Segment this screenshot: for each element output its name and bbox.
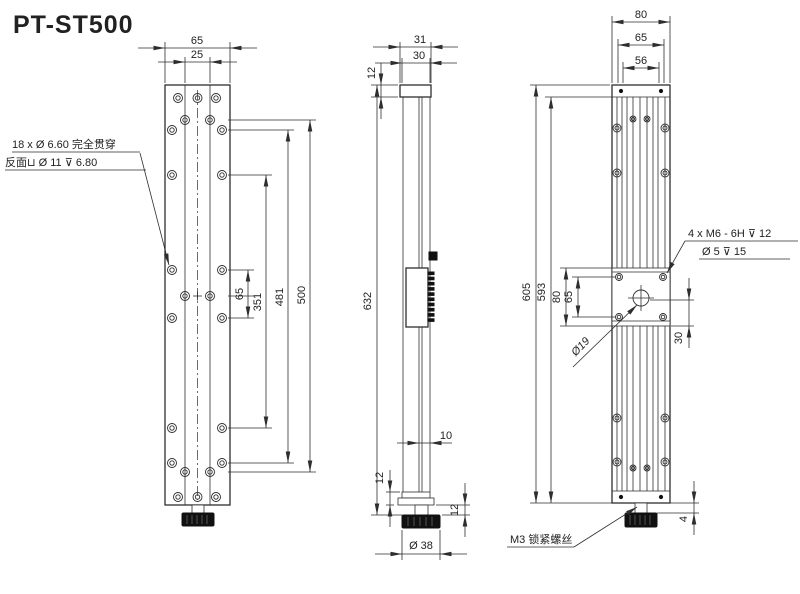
dim-label: 65	[234, 288, 246, 300]
dim-label: Ø 38	[409, 540, 433, 552]
dim-side-cap-height: 12	[366, 63, 398, 119]
dim-label: 65	[563, 291, 575, 303]
dim-label: 4	[678, 516, 690, 522]
hole-note-line1: 18 x Ø 6.60 完全贯穿	[12, 137, 116, 151]
front-center-cross	[193, 292, 202, 301]
dim-front-351: 351	[228, 175, 272, 428]
dim-label: 80	[635, 9, 647, 21]
hole-note-line2: 反面⊔ Ø 11 ⊽ 6.80	[5, 156, 97, 169]
side-knob-teeth	[428, 272, 434, 321]
dim-side-foot-left: 12	[374, 470, 400, 527]
dim-label: 31	[414, 34, 426, 46]
front-hole-note: 18 x Ø 6.60 完全贯穿 反面⊔ Ø 11 ⊽ 6.80	[5, 137, 169, 265]
dim-label: 481	[274, 288, 286, 306]
thread-note-line2: Ø 5 ⊽ 15	[702, 246, 746, 258]
lock-screw-label: M3 锁紧螺丝	[510, 532, 572, 546]
center-hole-label: Ø19	[569, 335, 593, 359]
dim-side-total: 632	[362, 85, 402, 515]
rear-lock-knob	[625, 503, 657, 527]
side-carriage	[406, 252, 437, 327]
drawing-sheet: PT-ST500	[0, 0, 800, 594]
dim-label: 80	[551, 291, 563, 303]
cad-drawing: PT-ST500	[0, 0, 800, 594]
dim-side-rod: 10	[397, 430, 452, 443]
front-lock-knob	[182, 505, 214, 526]
rear-lock-screw-note: M3 锁紧螺丝	[507, 507, 637, 547]
dim-label: 12	[374, 472, 386, 484]
dim-label: 632	[362, 292, 374, 310]
dim-rear-top-outer: 80	[612, 9, 670, 83]
dim-label: 605	[521, 283, 533, 301]
side-view: 31 30 12 632 10	[362, 34, 470, 560]
dim-label: 30	[413, 50, 425, 62]
dim-rear-base-gap: 4	[657, 481, 699, 535]
dim-label: 12	[449, 504, 461, 516]
side-foot	[398, 492, 440, 528]
front-mounting-holes	[168, 94, 227, 502]
dim-label: 56	[635, 55, 647, 67]
part-number-title: PT-ST500	[13, 11, 134, 39]
dim-label: 30	[673, 332, 685, 344]
rear-thread-note: 4 x M6 - 6H ⊽ 12 Ø 5 ⊽ 15	[667, 228, 798, 273]
rear-carriage	[612, 268, 670, 326]
dim-front-top-inner: 25	[158, 49, 237, 83]
dim-label: 351	[252, 293, 264, 311]
dim-side-cap-inner: 30	[375, 50, 457, 83]
rear-view: 80 65 56 605 593	[507, 9, 798, 547]
dim-label: 65	[635, 32, 647, 44]
dim-label: 65	[191, 35, 203, 47]
dim-front-hole-pair: 65	[228, 270, 254, 318]
dim-label: 10	[440, 430, 452, 442]
dim-label: 500	[296, 286, 308, 304]
dim-label: 593	[536, 283, 548, 301]
thread-note-line1: 4 x M6 - 6H ⊽ 12	[688, 228, 771, 240]
dim-rear-top-inner: 56	[623, 55, 659, 83]
front-view: 65 25 65 351 481	[5, 35, 316, 526]
dim-rear-carriage-inner: 65	[563, 277, 615, 317]
dim-label: 12	[366, 67, 378, 79]
dim-side-knob-dia: Ø 38	[375, 530, 467, 560]
dim-side-foot-right: 12	[436, 483, 470, 537]
side-top-cap	[400, 85, 431, 97]
dim-label: 25	[191, 49, 203, 61]
